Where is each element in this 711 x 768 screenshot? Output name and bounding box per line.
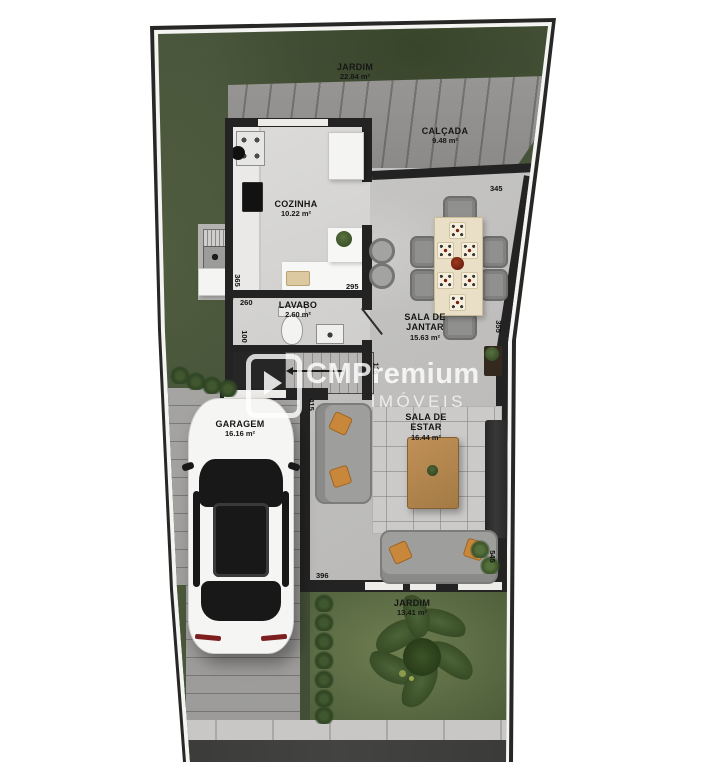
car-side-glass-right [282, 491, 289, 587]
dining-chair-right-2 [480, 269, 508, 301]
wall-lavabo-right-b [362, 340, 372, 352]
place-setting [437, 242, 454, 259]
room-name: COZINHA [256, 199, 336, 209]
table-centerpiece-flowers [451, 257, 464, 270]
car-taillight-left [195, 634, 221, 641]
room-label-cozinha: COZINHA 10.22 m² [256, 199, 336, 218]
hedge-plant [314, 613, 334, 631]
room-area: 15.63 m² [402, 333, 448, 342]
dim-dining-right: 355 [494, 320, 503, 333]
room-label-jardim-bottom: JARDIM 13.41 m² [362, 598, 462, 617]
hedge-plant [314, 594, 334, 612]
toilet [281, 315, 303, 345]
room-name: LAVABO [258, 300, 338, 310]
room-area: 2.60 m² [258, 310, 338, 319]
street-asphalt [160, 740, 520, 762]
brand-logo-icon [246, 354, 302, 418]
cutting-board [286, 271, 310, 286]
place-setting [449, 294, 466, 311]
room-name: JARDIM [310, 62, 400, 72]
sidewalk [160, 720, 520, 740]
bar-stool-1 [369, 238, 395, 264]
play-triangle-icon [264, 371, 282, 395]
room-label-lavabo: LAVABO 2.60 m² [258, 300, 338, 319]
car-side-glass-left [193, 491, 200, 587]
room-area: 22.84 m² [310, 72, 400, 81]
car-rear-window [201, 581, 281, 621]
wall-living-left [300, 398, 310, 592]
place-setting [461, 242, 478, 259]
dim-kitchen-left: 365 [233, 274, 242, 287]
bar-stool-2 [369, 263, 395, 289]
room-name: SALA DE JANTAR [402, 312, 448, 333]
hedge-plant [314, 651, 334, 669]
dim-lavabo-width: 260 [240, 298, 253, 307]
room-area: 16.16 m² [189, 429, 291, 438]
tree-accent [409, 676, 414, 681]
wall-kitchen-left [225, 118, 233, 400]
hedge-plant [314, 670, 334, 688]
watermark: CMPremium IMÓVEIS [246, 354, 516, 424]
watermark-brand: CMPremium [306, 358, 480, 391]
dining-chair-bottom [443, 312, 477, 340]
room-area: 9.48 m² [400, 136, 490, 145]
place-setting [461, 272, 478, 289]
room-label-sala-jantar: SALA DE JANTAR 15.63 m² [402, 312, 448, 342]
lavabo-sink-vanity [316, 324, 344, 344]
place-setting [437, 272, 454, 289]
dim-island-right: 295 [346, 282, 359, 291]
car-taillight-right [261, 634, 287, 641]
car-windshield [199, 459, 283, 507]
room-area: 10.22 m² [256, 209, 336, 218]
dim-dining-top: 345 [490, 184, 503, 193]
garden-tree [365, 606, 477, 714]
refrigerator [328, 132, 364, 180]
shrub [218, 379, 238, 397]
car: GARAGEM 16.16 m² [188, 398, 294, 654]
room-label-calcada: CALÇADA 9.48 m² [400, 126, 490, 145]
room-area: 13.41 m² [362, 608, 462, 617]
wall-lavabo-bottom [233, 345, 372, 352]
tv-panel [485, 420, 509, 538]
coffee-table-plant [427, 465, 438, 476]
room-label-jardim-top: JARDIM 22.84 m² [310, 62, 400, 81]
hedge-plant [314, 632, 334, 650]
room-name: CALÇADA [400, 126, 490, 136]
hedge-plant [314, 706, 334, 724]
tree-accent [399, 670, 406, 677]
dining-chair-right-1 [480, 236, 508, 268]
car-sunroof [213, 503, 269, 577]
room-area: 16.44 m² [398, 433, 454, 442]
tree-center [403, 638, 441, 676]
watermark-subtitle: IMÓVEIS [306, 392, 466, 412]
room-name: JARDIM [362, 598, 462, 608]
floor-plan-render: GARAGEM 16.16 m² [0, 0, 711, 768]
dim-living-bottom: 396 [316, 571, 329, 580]
wall-lavabo-divider [233, 290, 372, 298]
place-setting [449, 222, 466, 239]
kitchen-window [258, 119, 328, 126]
dim-living-right: 545 [488, 550, 497, 563]
hedge-plant [314, 689, 334, 707]
dim-lavabo-depth: 100 [240, 330, 249, 343]
cooking-pot [231, 146, 245, 160]
island-plant [336, 231, 352, 247]
